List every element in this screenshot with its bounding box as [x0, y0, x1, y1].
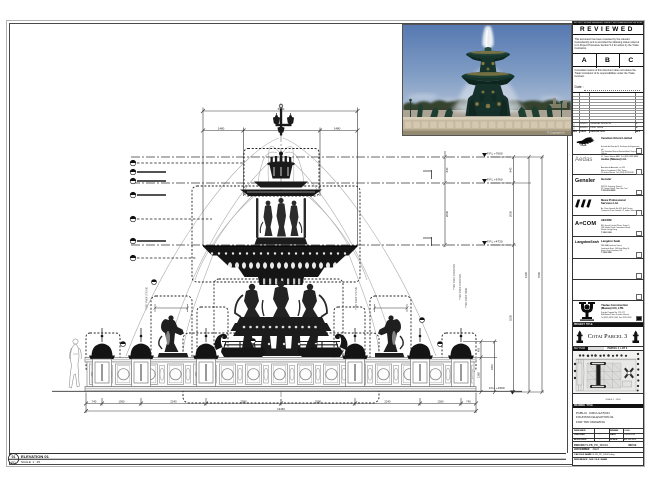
svg-text:840: 840: [509, 167, 513, 172]
svg-text:F.F.L +1500: F.F.L +1500: [489, 386, 505, 390]
svg-text:F.F.L +4730: F.F.L +4730: [487, 240, 503, 244]
svg-text:3230: 3230: [509, 314, 513, 321]
svg-text:© Copyright hh: © Copyright hh: [547, 131, 565, 135]
svg-text:2580: 2580: [315, 400, 322, 404]
svg-text:TYPE 'FW01' FOUNTAIN: TYPE 'FW01' FOUNTAIN: [453, 264, 456, 290]
svg-text:2240: 2240: [384, 400, 391, 404]
svg-text:1480: 1480: [218, 127, 225, 131]
svg-text:1810: 1810: [490, 364, 494, 370]
svg-text:2030: 2030: [509, 210, 513, 217]
svg-text:1360: 1360: [477, 372, 481, 378]
svg-text:1360: 1360: [437, 400, 444, 404]
svg-text:TYPE 'FW04' STATUE: TYPE 'FW04' STATUE: [355, 287, 358, 310]
svg-text:740: 740: [466, 400, 471, 404]
svg-text:6100: 6100: [524, 271, 528, 278]
svg-text:840: 840: [445, 167, 449, 172]
svg-text:13460: 13460: [277, 407, 285, 411]
svg-text:F.F.L +7600: F.F.L +7600: [487, 152, 503, 156]
svg-text:2580: 2580: [240, 400, 247, 404]
svg-text:1480: 1480: [334, 127, 341, 131]
svg-text:450: 450: [477, 347, 481, 352]
svg-text:2030: 2030: [445, 210, 449, 217]
svg-text:TYPE 'FW02' FOUNTAIN: TYPE 'FW02' FOUNTAIN: [459, 274, 462, 300]
svg-text:TYPE 'FW04' STATUE: TYPE 'FW04' STATUE: [146, 287, 149, 310]
svg-text:SCALE 1 : 25: SCALE 1 : 25: [21, 460, 40, 464]
svg-text:F.F.L +6760: F.F.L +6760: [487, 178, 503, 182]
svg-text:1360: 1360: [118, 400, 125, 404]
svg-text:ELEVATION 01: ELEVATION 01: [21, 454, 50, 459]
svg-text:TYPE 'FW03' WEIR: TYPE 'FW03' WEIR: [466, 287, 468, 308]
svg-text:2240: 2240: [170, 400, 177, 404]
svg-text:01: 01: [12, 455, 16, 459]
svg-text:740: 740: [92, 400, 97, 404]
svg-text:7600: 7600: [537, 271, 541, 278]
